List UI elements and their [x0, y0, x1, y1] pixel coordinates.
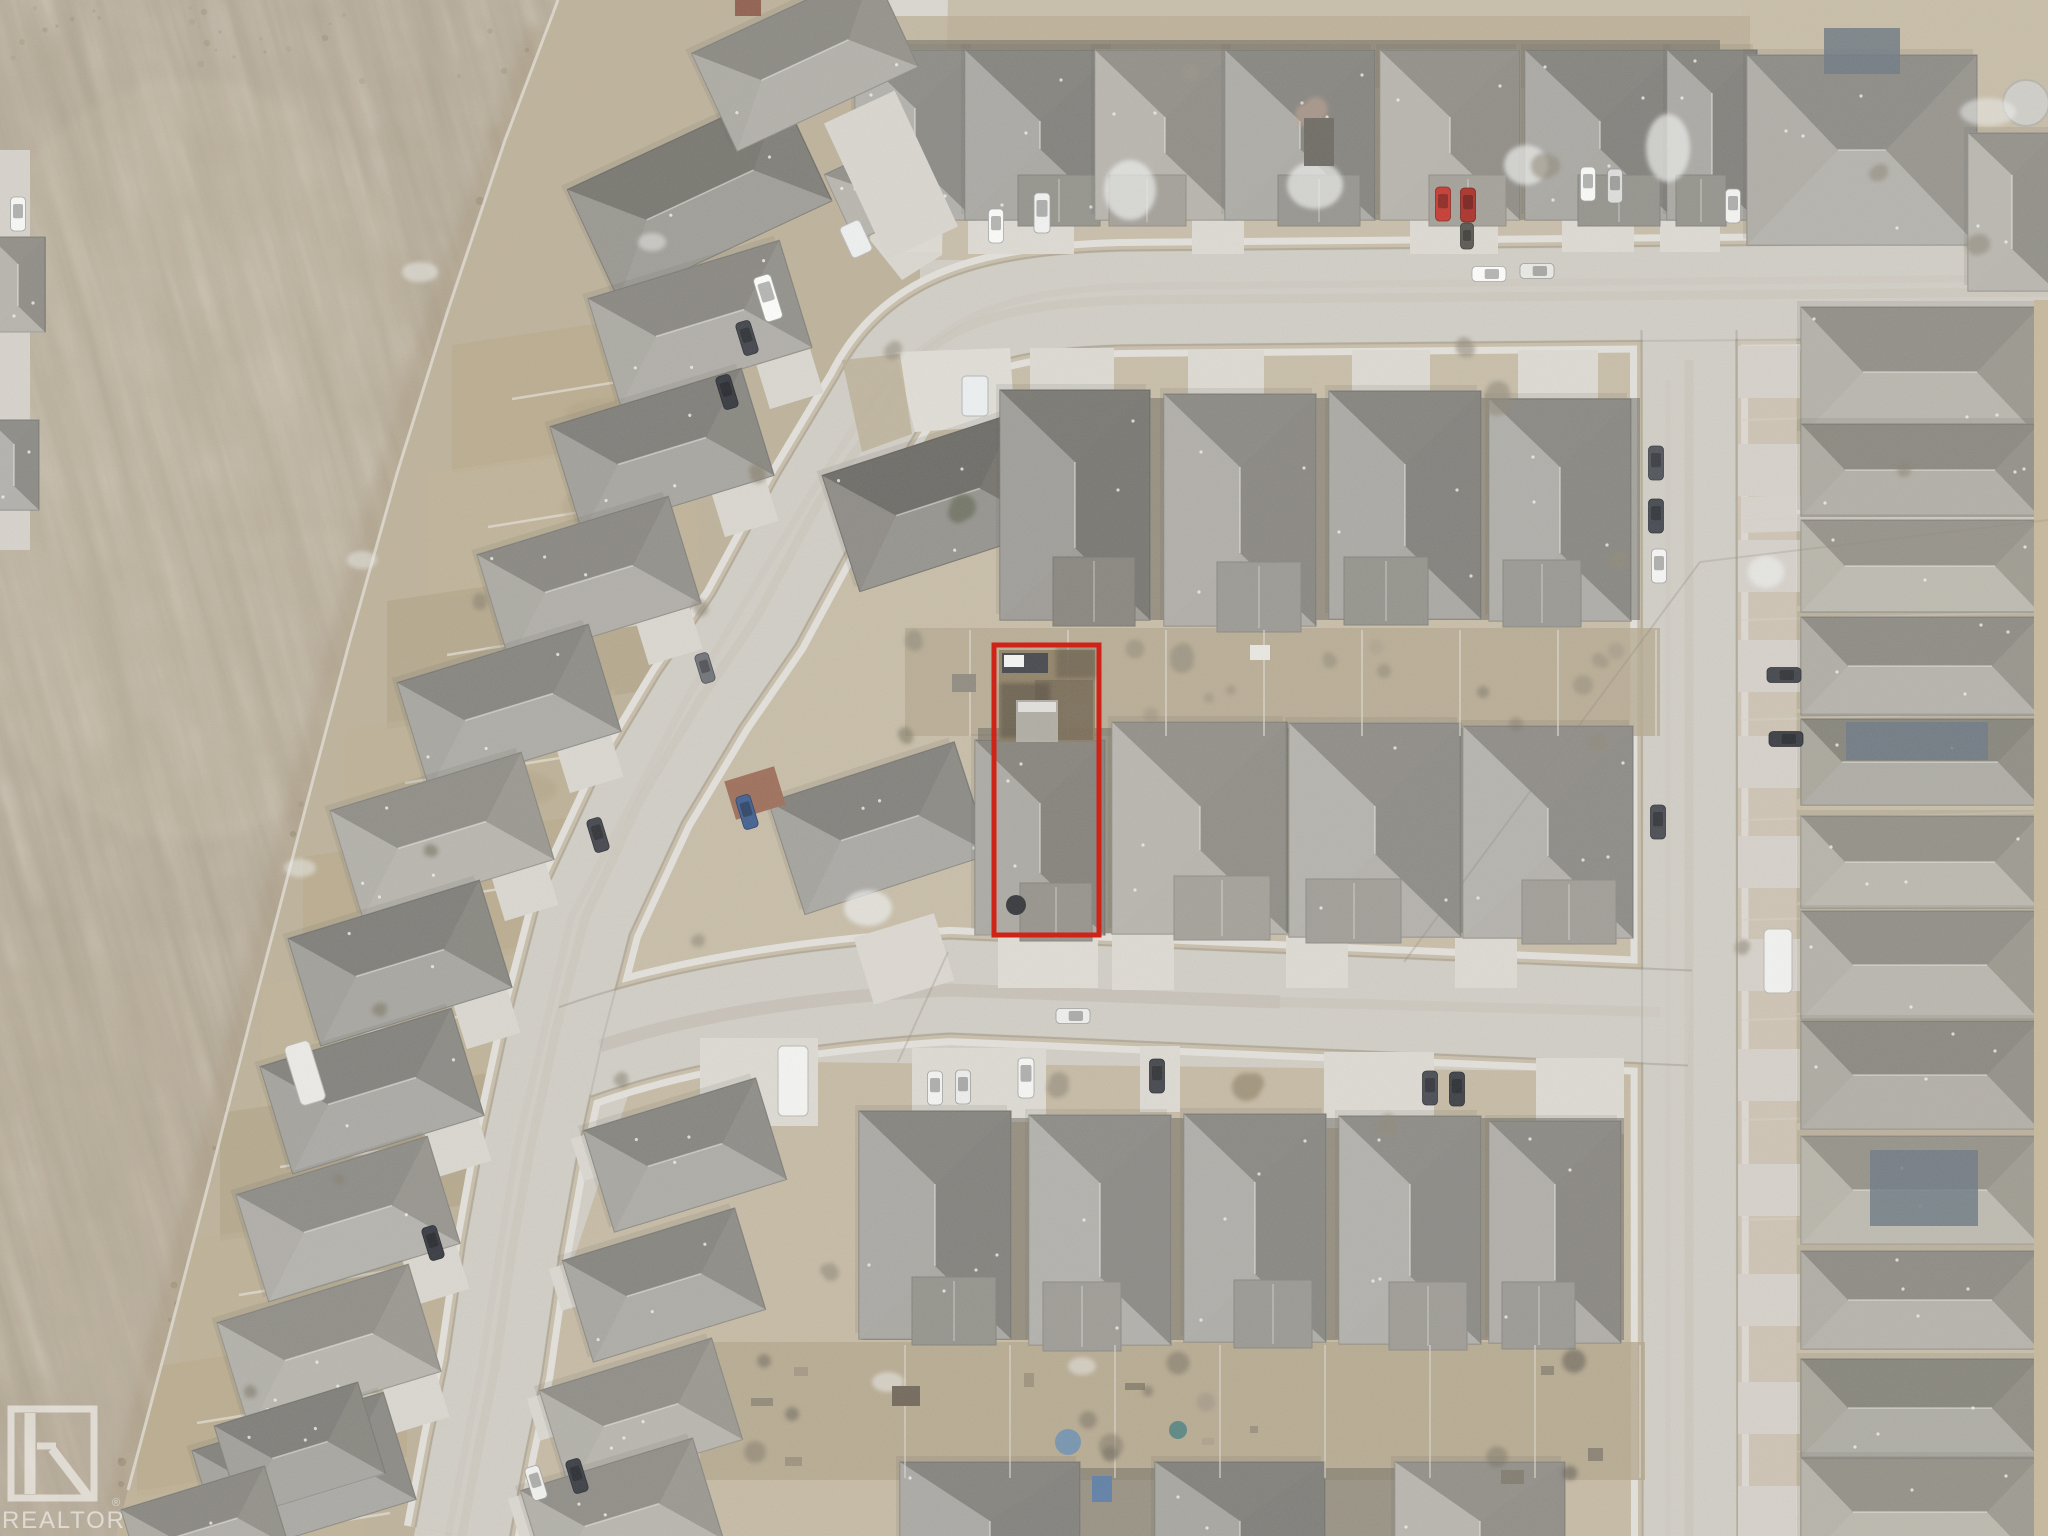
svg-text:®: ®: [112, 1497, 120, 1509]
svg-text:REALTOR: REALTOR: [2, 1507, 126, 1534]
